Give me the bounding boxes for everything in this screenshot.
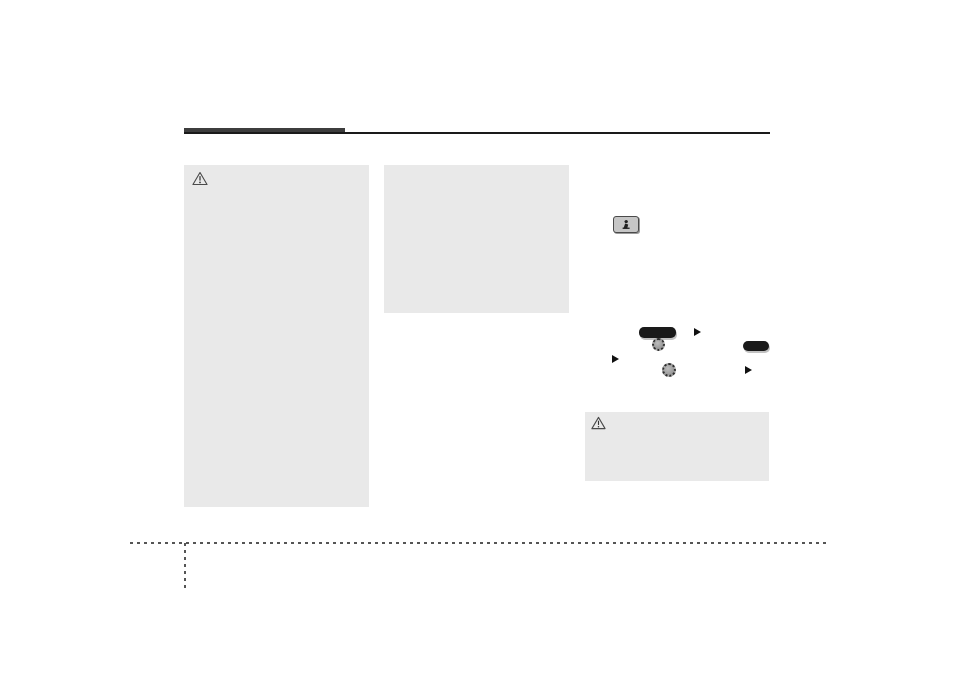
arrow-right-icon <box>612 355 619 363</box>
horizontal-dashed-line <box>130 542 830 544</box>
warning-triangle-icon <box>192 171 208 186</box>
vertical-dashed-line <box>184 543 186 588</box>
note-box-middle <box>384 165 569 313</box>
remote-button-glyph <box>620 219 632 230</box>
warning-triangle-icon <box>591 416 606 430</box>
caution-box-left <box>184 165 369 507</box>
manual-page <box>0 0 954 674</box>
rotary-knob-icon <box>662 363 676 377</box>
pill-button-small <box>743 341 769 351</box>
steering-remote-button-icon <box>613 216 639 233</box>
header-rule-line <box>184 132 770 134</box>
arrow-right-icon <box>694 328 701 336</box>
arrow-right-icon <box>745 366 752 374</box>
caution-box-right <box>585 412 769 481</box>
rotary-knob-icon <box>652 338 665 351</box>
pill-button-large <box>639 327 676 338</box>
